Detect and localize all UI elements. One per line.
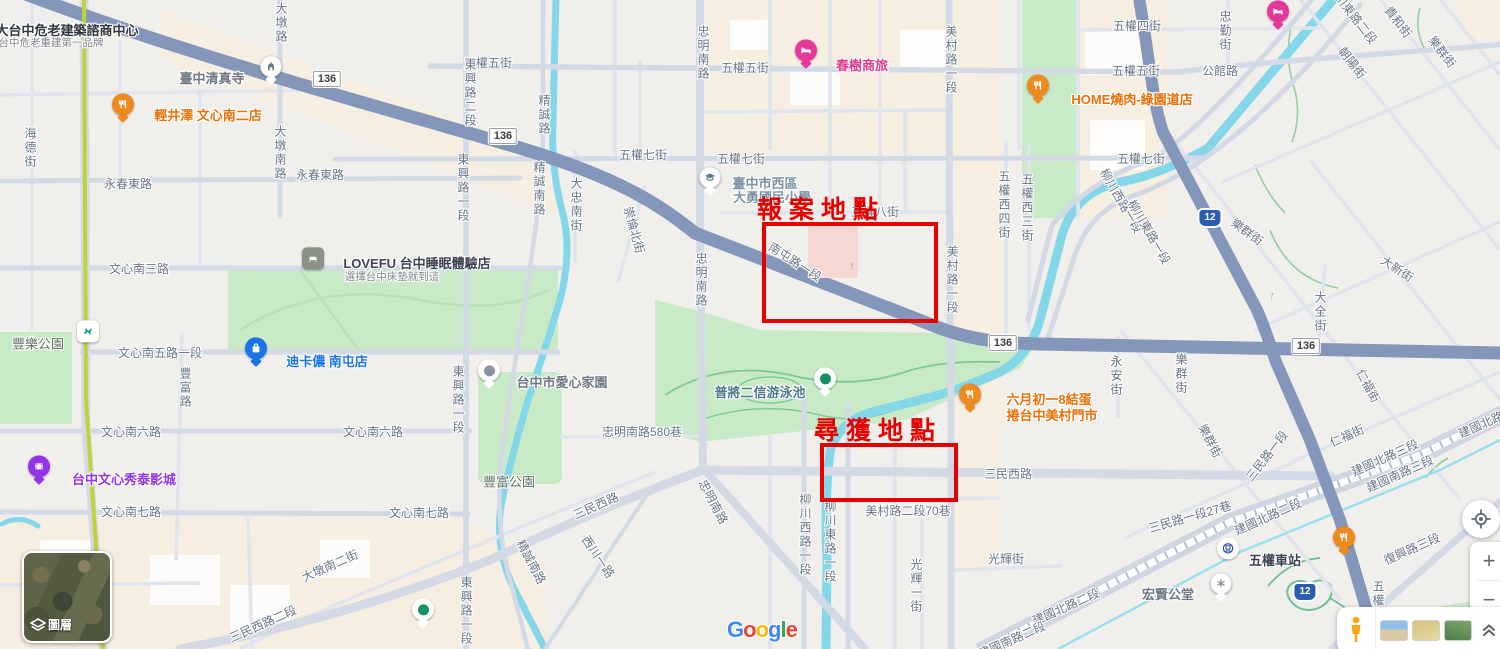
street-label: 公館路 [1202, 65, 1238, 77]
imagery-thumbnail-2[interactable] [1412, 620, 1440, 641]
poi-label[interactable]: 五權車站 [1249, 554, 1301, 568]
street-label: 文心南六路 [101, 426, 161, 438]
street-label: 三民西路 [984, 468, 1032, 480]
poi-label[interactable]: 普將二信游泳池 [714, 386, 805, 400]
store-icon[interactable] [301, 247, 325, 271]
pegman[interactable] [1337, 607, 1376, 649]
layers-icon [30, 618, 46, 634]
street-label: 忠明南路 [697, 25, 709, 81]
street-label: 海德街 [24, 127, 36, 169]
temple-icon[interactable] [1209, 572, 1233, 596]
poi-label[interactable]: LOVEFU 台中睡眠體驗店 [343, 257, 490, 271]
street-label: 東興路一段 [460, 576, 472, 646]
park-label: 豐富公園 [483, 476, 535, 489]
dotgreen-icon[interactable] [813, 367, 837, 391]
street-label: 大墩南路 [274, 125, 286, 181]
route-shield-136: 136 [313, 71, 341, 87]
street-label: 永春東路 [104, 178, 152, 190]
street-label: 精誠路 [538, 94, 550, 136]
park-label: 豐樂公園 [12, 338, 64, 351]
street-label: 五權西四街 [998, 170, 1010, 240]
shopping-icon[interactable] [244, 337, 268, 361]
map-canvas[interactable]: 五權五街五權五街五權五街五權四街五權七街五權七街五權七街公館路五權八街永春東路永… [0, 0, 1500, 649]
poi-label[interactable]: 宏賢公堂 [1142, 588, 1194, 602]
poi-label[interactable]: 輕井澤 文心南二店 [154, 109, 262, 123]
poi-sublabel[interactable]: 捲台中美村門市 [1006, 409, 1097, 423]
collapse-button[interactable] [1482, 622, 1496, 638]
route-shield-12: 12 [1198, 209, 1221, 227]
hotel-icon[interactable] [794, 39, 818, 63]
poi-label[interactable]: 台中文心秀泰影城 [72, 473, 176, 487]
street-label: 美村路二段70巷 [865, 505, 950, 517]
street-label: 光輝一街 [910, 558, 922, 614]
street-label: 忠明南路580巷 [602, 426, 682, 438]
street-label: 東興路一段 [452, 365, 464, 435]
street-label: 五權五街 [721, 62, 769, 74]
street-label: 永春東路 [296, 169, 344, 181]
mrt-icon[interactable] [76, 320, 100, 344]
locate-icon [1471, 509, 1491, 529]
found-location-label: 尋獲地點 [814, 418, 942, 443]
school-icon[interactable] [698, 166, 722, 190]
restaurant-icon[interactable] [111, 93, 135, 117]
imagery-thumbnail-3[interactable] [1444, 620, 1472, 641]
dotgreen-icon[interactable] [411, 598, 435, 622]
street-label: 美村路一段 [946, 245, 958, 315]
google-logo-letter: g [768, 617, 780, 642]
zoom-in-button[interactable]: + [1470, 542, 1500, 580]
google-logo-letter: o [743, 617, 755, 642]
route-shield-12: 12 [1293, 583, 1316, 601]
train-icon[interactable] [1216, 537, 1240, 561]
street-label: 精誠南路 [533, 161, 545, 217]
street-label: 大全街 [1314, 291, 1326, 333]
poi-label[interactable]: 春樹商旅 [836, 59, 888, 73]
poi-label[interactable]: 臺中清真寺 [179, 72, 244, 86]
poi-label[interactable]: 六月初一8結蛋 [1006, 393, 1091, 407]
dotgray-icon[interactable] [477, 359, 501, 383]
street-label: 文心南七路 [101, 506, 161, 518]
chevron-up-icon [1482, 622, 1496, 638]
google-logo-letter: e [786, 617, 797, 642]
street-label: 柳川西路一段 [799, 493, 811, 577]
street-label: 大墩路 [275, 2, 287, 44]
imagery-thumbnail-1[interactable] [1380, 620, 1408, 641]
street-label: 文心南七路 [389, 507, 449, 519]
street-label: 五權五街 [1112, 65, 1160, 77]
street-label: 美村路一段 [945, 25, 957, 95]
layers-button[interactable]: 圖層 [22, 551, 112, 643]
street-label: 豐富路 [179, 367, 191, 409]
hotel-icon[interactable] [1266, 0, 1290, 24]
street-label: 五權四街 [1113, 20, 1161, 32]
street-label: 忠明南路 [695, 252, 707, 308]
google-logo-letter: o [756, 617, 768, 642]
streetview-bar [1337, 607, 1500, 649]
street-label: 東興路一段 [457, 153, 469, 223]
street-label: 五權西三街 [1021, 173, 1033, 243]
route-shield-136: 136 [989, 335, 1017, 351]
street-label: 柳川東路一段 [824, 500, 836, 584]
basemap [0, 0, 1500, 649]
poi-label[interactable]: HOME燒肉-綠園道店 [1071, 93, 1192, 107]
street-label: 忠勤街 [1219, 10, 1231, 52]
poi-sublabel[interactable]: 台中危老重建第一品牌 [0, 38, 104, 50]
google-logo[interactable]: Google [727, 617, 797, 643]
google-logo-letter: G [727, 617, 743, 642]
street-label: 文心南六路 [343, 426, 403, 438]
route-shield-136: 136 [489, 128, 517, 144]
restaurant-icon[interactable] [1332, 526, 1356, 550]
my-location-button[interactable] [1462, 500, 1500, 538]
restaurant-icon[interactable] [1026, 74, 1050, 98]
street-label: 大忠南街 [570, 177, 582, 233]
street-label: 東興路二段 [464, 58, 476, 128]
street-label: 永安街 [1110, 355, 1122, 397]
street-label: 文心南三路 [109, 263, 169, 275]
mosque-icon[interactable] [259, 55, 283, 79]
cinema-icon[interactable] [27, 455, 51, 479]
street-label: 樂群街 [1175, 353, 1187, 395]
street-label: 五權七街 [717, 153, 765, 165]
report-location-rect [762, 222, 938, 323]
poi-label[interactable]: 大台中危老建築諮商中心 [0, 24, 139, 38]
pegman-icon [1348, 616, 1364, 644]
street-label: 光輝街 [988, 553, 1024, 565]
restaurant-icon[interactable] [958, 383, 982, 407]
report-location-label: 報案地點 [757, 197, 885, 222]
poi-label[interactable]: 迪卡儂 南屯店 [286, 355, 368, 369]
street-label: 五權七街 [619, 149, 667, 161]
poi-label[interactable]: 台中市愛心家園 [516, 376, 607, 390]
street-label: 文心南五路一段 [118, 347, 202, 359]
layers-label: 圖層 [48, 616, 72, 633]
street-label: 五權七街 [1117, 153, 1165, 165]
oneway-arrow-icon: ↑ [947, 257, 953, 269]
found-location-rect [820, 443, 958, 502]
poi-sublabel[interactable]: 選擇台中床墊就到這 [345, 272, 440, 284]
route-shield-136: 136 [1292, 338, 1320, 354]
